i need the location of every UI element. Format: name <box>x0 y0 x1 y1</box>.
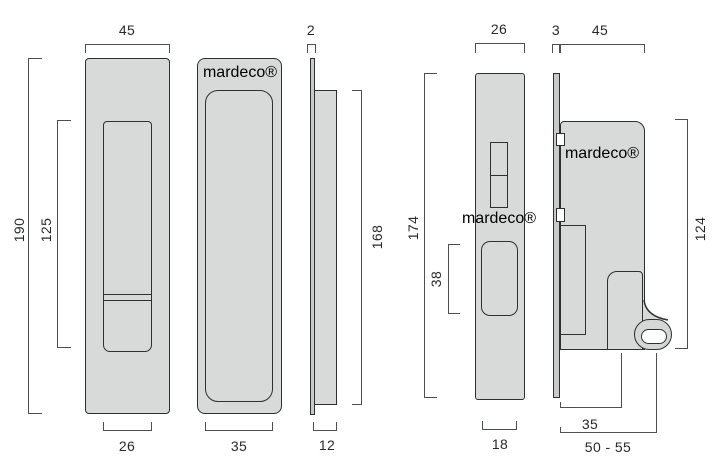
dim-label-pull-height: 190 <box>12 218 26 243</box>
pull-rear-recess <box>205 90 273 402</box>
hook-pull-slot <box>641 329 667 344</box>
dim-label-cup-height: 168 <box>370 225 384 250</box>
dim-bracket-cup-depth <box>313 422 337 431</box>
hook-pull <box>634 319 672 350</box>
brand-logo-pull: mardeco® <box>203 65 277 81</box>
dim-label-backplate-thickness: 3 <box>552 23 560 37</box>
brand-logo-case: mardeco® <box>565 146 639 162</box>
fixing-tab-middle <box>556 208 565 222</box>
dim-bracket-snib-offset <box>560 402 621 408</box>
side-cup-body <box>314 90 337 405</box>
dim-bracket-edge-thickness <box>307 44 316 53</box>
dim-bracket-pull-recess-height <box>57 120 71 348</box>
dim-label-pull-width: 45 <box>119 23 135 37</box>
dim-label-pull2-recess-width: 35 <box>231 439 247 453</box>
faceplate-screw-hole-bottom <box>0 10 10 20</box>
dim-bracket-pull2-recess-width <box>205 422 273 431</box>
dim-bracket-backplate-thickness <box>552 44 560 53</box>
screw-bottom <box>0 92 14 106</box>
screw-top-right <box>0 53 13 66</box>
dim-label-pull-recess-width: 26 <box>119 439 135 453</box>
dim-label-case-width: 45 <box>592 23 608 37</box>
dim-bracket-backset <box>560 427 656 433</box>
screw-bottom-center <box>0 106 6 112</box>
dim-bracket-pull-recess-width <box>103 422 152 431</box>
dim-label-backset: 50 - 55 <box>585 440 631 454</box>
lock-faceplate <box>475 73 525 400</box>
technical-drawing: 45 190 125 26 mardeco® 35 2 168 12 marde… <box>0 0 720 475</box>
dim-bracket-faceplate-height <box>424 73 437 398</box>
dim-label-cup-depth: 12 <box>319 438 335 452</box>
dim-leader-backset <box>656 353 657 433</box>
edge-pull-lip <box>104 294 151 301</box>
dim-label-pull-recess-height: 125 <box>39 218 53 243</box>
dim-label-case-thickness: 18 <box>492 437 508 451</box>
fixing-tab-top <box>556 133 565 146</box>
dim-label-faceplate-height: 174 <box>406 216 420 241</box>
dim-bracket-cup-height <box>352 90 362 405</box>
dim-label-faceplate-width: 26 <box>491 22 507 36</box>
latch-divider <box>490 175 508 176</box>
faceplate-screw-hole-top <box>0 0 10 10</box>
dim-bracket-bolt-window-height <box>448 244 460 314</box>
screw-middle <box>0 71 15 86</box>
dim-leader-snib-offset <box>621 353 622 408</box>
dim-bracket-case-thickness <box>482 421 517 430</box>
dim-bracket-faceplate-width <box>475 43 525 53</box>
dim-bracket-case-width <box>560 44 645 53</box>
brand-logo-text: mar <box>203 64 231 81</box>
dim-bracket-pull-width <box>85 44 170 53</box>
snib-slot <box>0 20 22 35</box>
screw-top-left <box>0 35 13 48</box>
dim-label-bolt-window-height: 38 <box>429 271 443 287</box>
lock-inner-mechanism <box>560 225 586 335</box>
pull-front-recess <box>103 121 152 352</box>
bolt-window <box>481 241 518 316</box>
dim-label-edge-thickness: 2 <box>307 23 315 37</box>
dim-label-case-height: 124 <box>693 217 707 242</box>
dim-bracket-case-height <box>675 119 688 349</box>
brand-logo-faceplate: mardeco® <box>462 211 536 227</box>
lock-backplate <box>553 73 560 398</box>
